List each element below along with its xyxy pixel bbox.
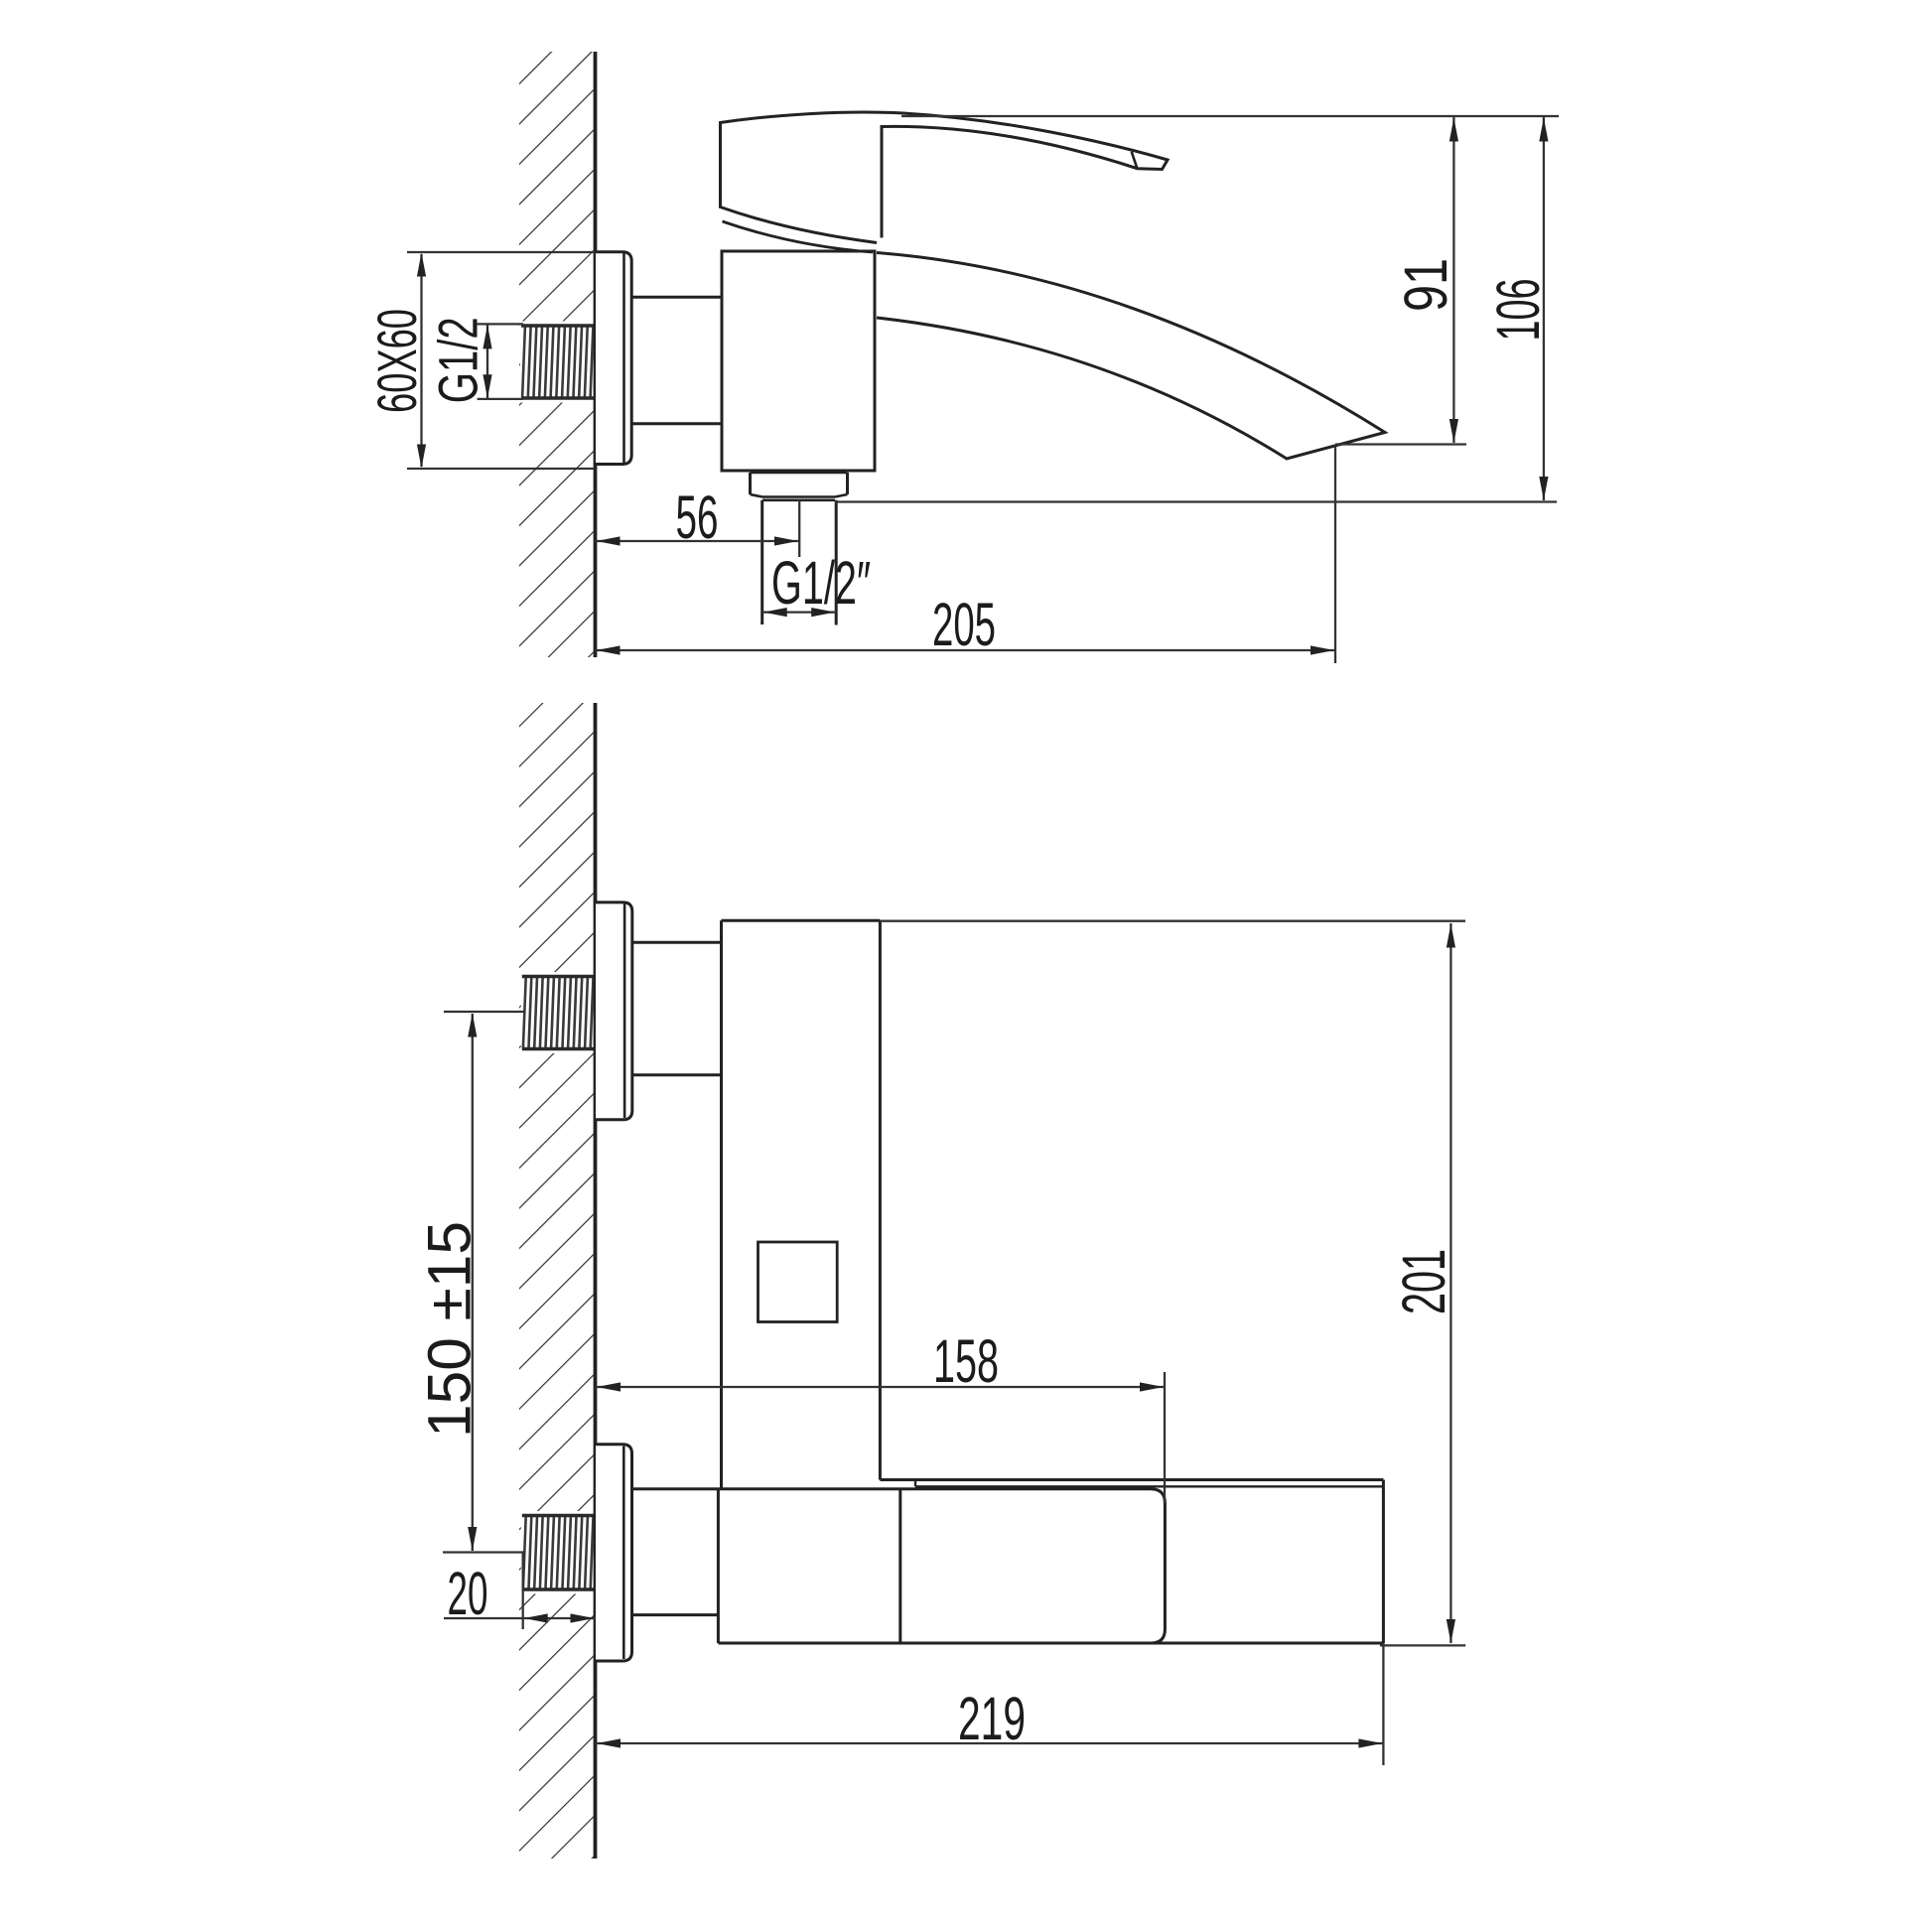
svg-text:201: 201 xyxy=(1390,1249,1457,1314)
svg-text:219: 219 xyxy=(958,1685,1026,1752)
svg-text:91: 91 xyxy=(1392,258,1459,312)
svg-text:G1/2: G1/2 xyxy=(427,317,489,403)
svg-text:205: 205 xyxy=(932,591,996,658)
svg-text:150 ±15: 150 ±15 xyxy=(416,1221,483,1438)
svg-text:60X60: 60X60 xyxy=(365,309,428,413)
svg-text:56: 56 xyxy=(676,483,719,551)
svg-text:106: 106 xyxy=(1484,279,1552,342)
svg-text:G1/2″: G1/2″ xyxy=(771,549,871,617)
svg-text:20: 20 xyxy=(448,1560,488,1627)
svg-text:158: 158 xyxy=(933,1327,999,1395)
